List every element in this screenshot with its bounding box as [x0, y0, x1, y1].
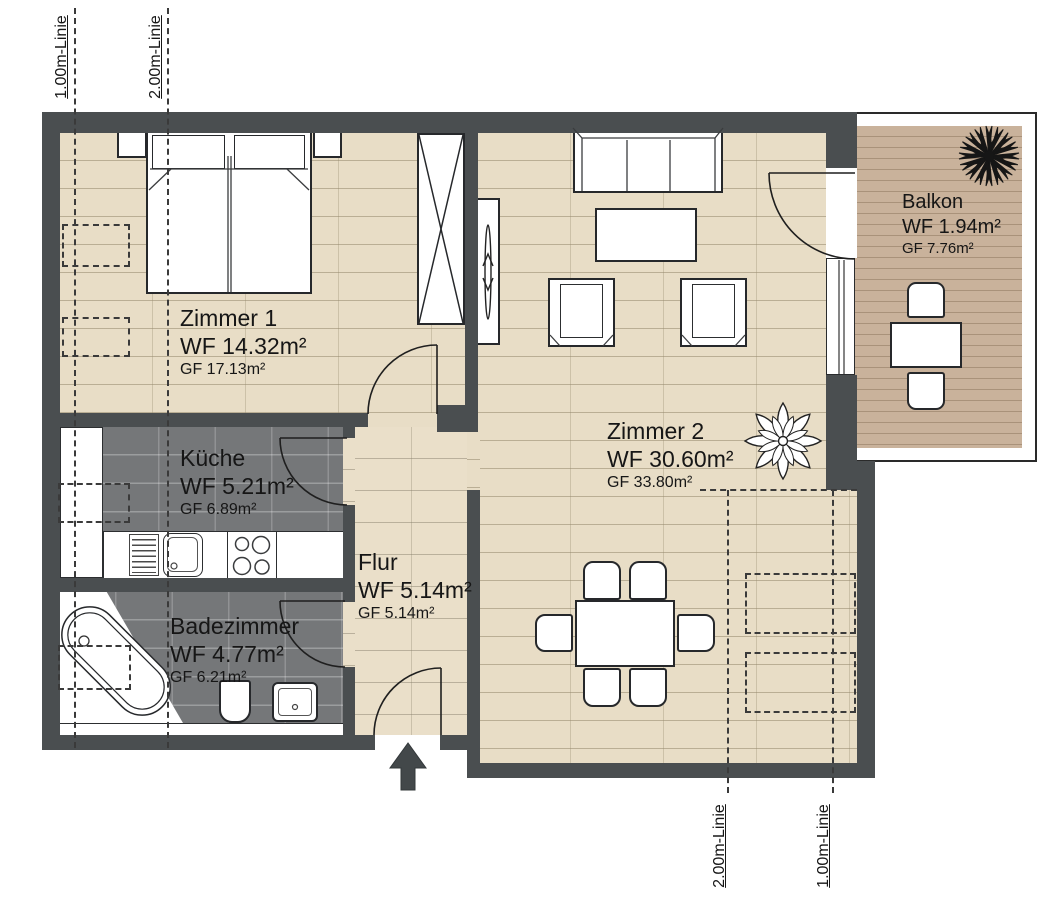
- wardrobe: [417, 133, 465, 325]
- wall-zimmer1-kueche: [42, 413, 368, 427]
- sofa: [573, 127, 723, 193]
- balkon-gf: GF 7.76m²: [902, 240, 1001, 258]
- dining-chair-top2: [629, 561, 667, 600]
- kueche-name: Küche: [180, 444, 294, 472]
- dashed-area-zimmer2-b: [745, 652, 856, 713]
- guide-label-1m-top: 1.00m-Linie: [53, 2, 73, 112]
- zimmer1-name: Zimmer 1: [180, 304, 307, 332]
- stove-section: [227, 531, 277, 580]
- coffee-table: [595, 208, 697, 262]
- dashed-area-zimmer1-b: [62, 317, 130, 357]
- wall-flur-left-a: [343, 427, 355, 438]
- floor-plan: Zimmer 1 WF 14.32m² GF 17.13m² Küche WF …: [0, 0, 1050, 898]
- pillow-left: [152, 135, 225, 169]
- label-balkon: Balkon WF 1.94m² GF 7.76m²: [902, 190, 1001, 258]
- dashed-area-zimmer1-a: [62, 224, 130, 267]
- armchair-right-seat: [692, 284, 735, 338]
- zimmer2-gf: GF 33.80m²: [607, 473, 734, 493]
- flur-wf: WF 5.14m²: [358, 576, 472, 604]
- nightstand-right: [313, 130, 342, 158]
- wall-bottom-left-b: [440, 735, 470, 750]
- kueche-wf: WF 5.21m²: [180, 472, 294, 500]
- dining-chair-right: [677, 614, 715, 652]
- dining-chair-bottom2: [629, 668, 667, 707]
- bathroom-sink-basin: [278, 688, 312, 716]
- kueche-gf: GF 6.89m²: [180, 500, 294, 520]
- wall-zimmer2-bottom: [467, 763, 875, 778]
- dishwasher: [129, 534, 159, 576]
- guide-label-1m-bottom: 1.00m-Linie: [815, 791, 835, 898]
- balcony-window: [826, 258, 855, 375]
- wall-top: [42, 112, 857, 133]
- guide-line-1m-bottom: [832, 490, 834, 793]
- badezimmer-shelf-strip: [60, 723, 343, 735]
- flur-zimmer2-passage: [467, 432, 480, 490]
- dining-chair-left: [535, 614, 573, 652]
- kitchen-sink-basin: [167, 537, 198, 572]
- dashed-area-zimmer2-a: [745, 573, 856, 634]
- guide-label-2m-bottom: 2.00m-Linie: [711, 791, 731, 898]
- flur-gf: GF 5.14m²: [358, 604, 472, 624]
- armchair-left: [548, 278, 615, 347]
- balkon-wf: WF 1.94m²: [902, 215, 1001, 240]
- flur-name: Flur: [358, 548, 472, 576]
- armchair-left-seat: [560, 284, 603, 338]
- label-flur: Flur WF 5.14m² GF 5.14m²: [358, 548, 472, 624]
- zimmer1-door-threshold: [368, 413, 437, 427]
- tv-sideboard: [476, 198, 500, 345]
- wall-zimmer1-zimmer2: [465, 127, 478, 405]
- wall-balconydoor-top: [826, 133, 857, 168]
- kueche-door-threshold: [343, 438, 355, 505]
- wall-flur-left-b: [343, 505, 355, 602]
- wall-zimmer1-flur-corner: [437, 405, 478, 432]
- guide-label-2m-top: 2.00m-Linie: [147, 2, 167, 112]
- label-badezimmer: Badezimmer WF 4.77m² GF 6.21m²: [170, 612, 299, 688]
- balcony-chair-bottom: [907, 372, 945, 410]
- dashed-area-kueche: [58, 483, 130, 523]
- guide-line-2m-bottom: [727, 490, 729, 793]
- balcony-door-opening: [826, 166, 857, 258]
- dining-table: [575, 600, 675, 667]
- bathroom-sink: [272, 682, 318, 722]
- badezimmer-wf: WF 4.77m²: [170, 640, 299, 668]
- bad-door-threshold: [343, 602, 355, 667]
- dining-chair-top1: [583, 561, 621, 600]
- badezimmer-name: Badezimmer: [170, 612, 299, 640]
- wall-flur-zimmer2: [467, 490, 480, 763]
- zimmer1-wf: WF 14.32m²: [180, 332, 307, 360]
- label-zimmer1: Zimmer 1 WF 14.32m² GF 17.13m²: [180, 304, 307, 380]
- armchair-right: [680, 278, 747, 347]
- kitchen-sink: [163, 533, 203, 577]
- balkon-name: Balkon: [902, 190, 1001, 215]
- pillow-right: [234, 135, 305, 169]
- wall-bottom-left-a: [42, 735, 375, 750]
- dashed-area-bad: [58, 645, 131, 690]
- guide-line-1m-top: [74, 8, 76, 748]
- dining-chair-bottom1: [583, 668, 621, 707]
- zimmer2-wf: WF 30.60m²: [607, 445, 734, 473]
- badezimmer-gf: GF 6.21m²: [170, 668, 299, 688]
- entrance-arrow-icon: [390, 743, 426, 790]
- wall-flur-left-c: [343, 667, 355, 735]
- wall-zimmer2-right: [857, 461, 875, 772]
- label-zimmer2: Zimmer 2 WF 30.60m² GF 33.80m²: [607, 417, 734, 493]
- balcony-chair-top: [907, 282, 945, 318]
- entrance-threshold: [375, 735, 440, 750]
- zimmer2-name: Zimmer 2: [607, 417, 734, 445]
- label-kueche: Küche WF 5.21m² GF 6.89m²: [180, 444, 294, 520]
- wall-window-corner: [826, 375, 857, 490]
- zimmer1-gf: GF 17.13m²: [180, 360, 307, 380]
- wall-kueche-bad: [42, 578, 355, 592]
- nightstand-left: [117, 130, 147, 158]
- balcony-table: [890, 322, 962, 368]
- guide-line-2m-top: [167, 8, 169, 748]
